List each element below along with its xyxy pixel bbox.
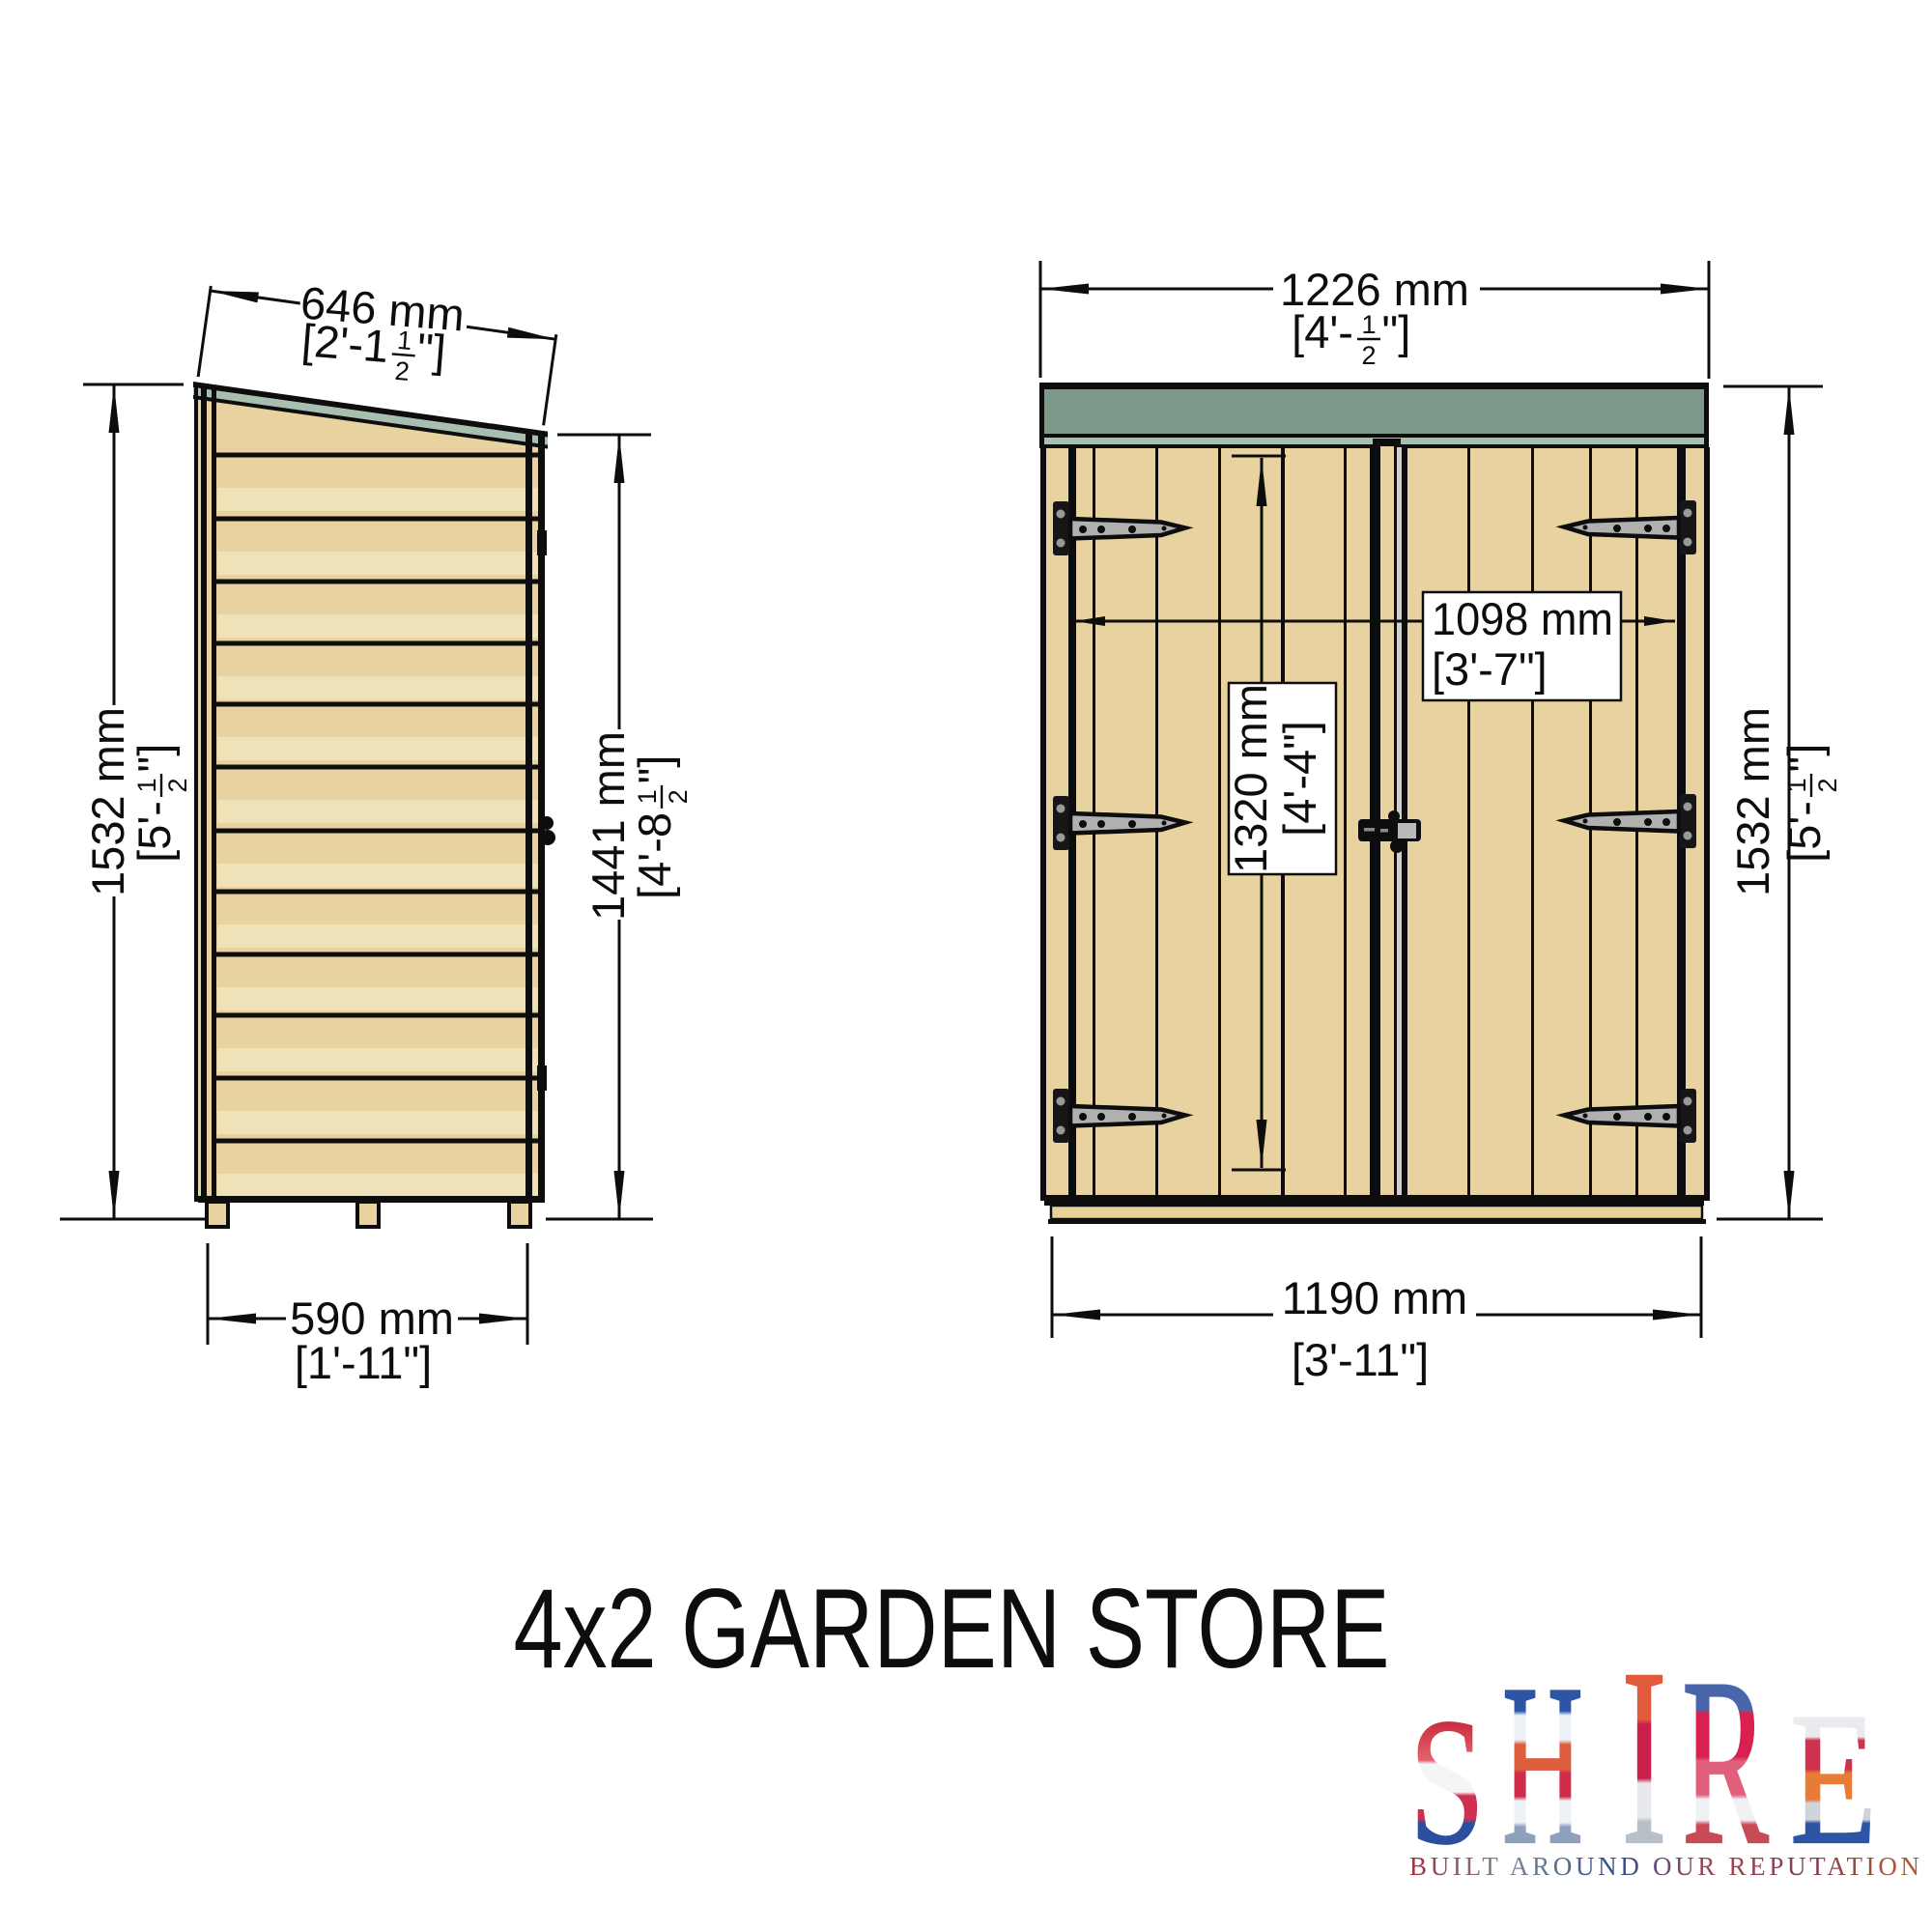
svg-text:[3'-11"]: [3'-11"] — [1292, 1334, 1429, 1385]
svg-text:1: 1 — [1782, 778, 1811, 792]
svg-text:"]: "] — [128, 744, 180, 773]
svg-text:[5'-: [5'- — [1778, 801, 1830, 863]
svg-text:"]: "] — [1382, 306, 1411, 357]
svg-text:[2'-1: [2'-1 — [300, 314, 391, 372]
svg-text:1098 mm: 1098 mm — [1432, 593, 1613, 644]
svg-text:"]: "] — [629, 755, 680, 784]
svg-text:[4'-8: [4'-8 — [629, 812, 680, 899]
svg-text:[4'-4"]: [4'-4"] — [1274, 721, 1325, 837]
svg-text:1441 mm: 1441 mm — [582, 731, 634, 921]
svg-text:2: 2 — [163, 778, 192, 792]
svg-text:4x2 GARDEN STORE: 4x2 GARDEN STORE — [514, 1565, 1390, 1691]
svg-text:[5'-: [5'- — [128, 801, 180, 863]
svg-text:"]: "] — [415, 324, 448, 377]
svg-text:[3'-7"]: [3'-7"] — [1432, 643, 1548, 695]
svg-text:1320 mm: 1320 mm — [1225, 684, 1276, 873]
svg-text:1: 1 — [132, 778, 161, 792]
svg-text:[1'-11"]: [1'-11"] — [295, 1337, 432, 1388]
svg-text:"]: "] — [1778, 744, 1830, 773]
svg-text:[4'-: [4'- — [1292, 306, 1353, 357]
svg-text:2: 2 — [1813, 778, 1842, 792]
svg-text:1: 1 — [396, 326, 412, 355]
svg-text:2: 2 — [664, 789, 693, 804]
svg-text:2: 2 — [394, 356, 411, 386]
svg-text:1190 mm: 1190 mm — [1282, 1272, 1467, 1323]
svg-text:1: 1 — [1362, 310, 1377, 339]
svg-text:1532 mm: 1532 mm — [82, 707, 133, 896]
svg-text:1: 1 — [633, 789, 662, 804]
svg-text:2: 2 — [1362, 341, 1377, 370]
svg-text:1532 mm: 1532 mm — [1727, 707, 1778, 896]
